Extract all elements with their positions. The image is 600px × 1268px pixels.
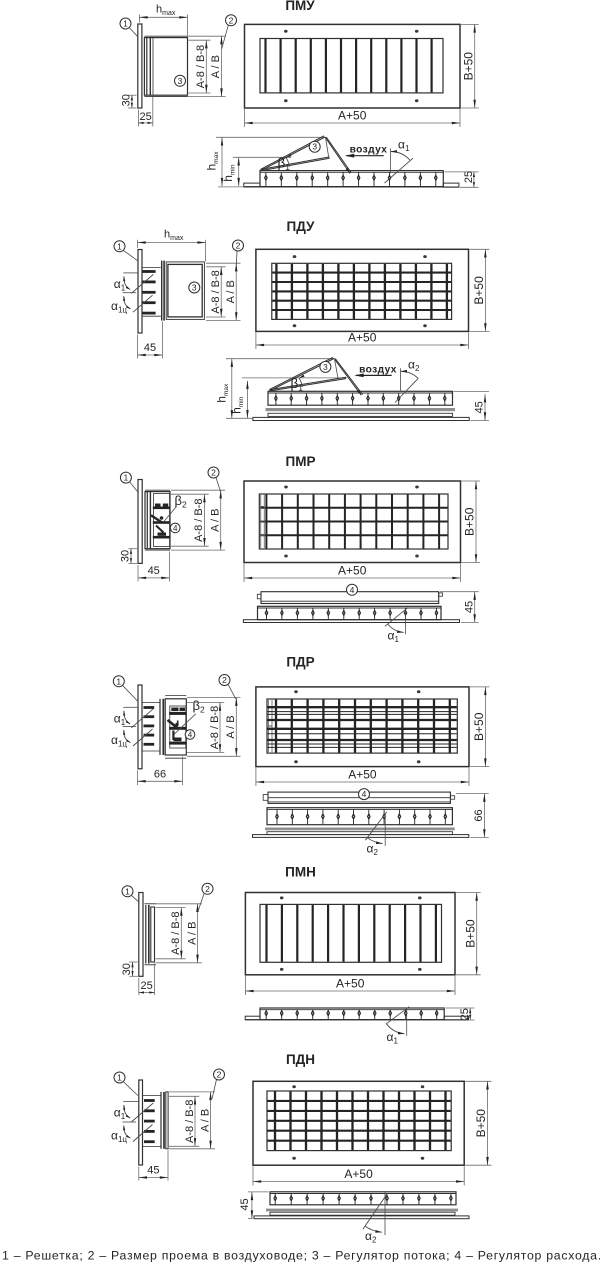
svg-text:3: 3	[192, 283, 197, 293]
svg-text:25: 25	[459, 1008, 471, 1020]
svg-text:hmax: hmax	[164, 229, 184, 243]
svg-text:ПДН: ПДН	[286, 1052, 315, 1067]
svg-text:β2: β2	[193, 698, 205, 715]
svg-text:45: 45	[474, 401, 486, 413]
svg-text:α1ц: α1ц	[111, 733, 127, 749]
svg-text:A-8 / B-8: A-8 / B-8	[170, 911, 182, 954]
svg-text:1: 1	[117, 1073, 122, 1083]
svg-text:3: 3	[323, 362, 328, 372]
svg-text:4: 4	[173, 524, 178, 533]
svg-text:A-8 / B-8: A-8 / B-8	[193, 498, 205, 541]
svg-text:30: 30	[120, 94, 132, 106]
svg-text:1: 1	[117, 241, 122, 251]
svg-text:1 – Решетка; 2 – Размер проема: 1 – Решетка; 2 – Размер проема в воздухо…	[2, 1249, 600, 1263]
svg-text:β1: β1	[278, 156, 291, 173]
svg-text:α1: α1	[398, 138, 410, 154]
svg-text:A-8 / B-8: A-8 / B-8	[195, 45, 207, 88]
svg-text:A-8 / B-8: A-8 / B-8	[210, 270, 222, 313]
svg-text:2: 2	[217, 1070, 222, 1080]
svg-text:A+50: A+50	[336, 977, 365, 991]
svg-text:4: 4	[188, 731, 193, 740]
svg-text:B+50: B+50	[472, 712, 486, 741]
svg-text:A / B: A / B	[186, 922, 198, 945]
svg-text:B+50: B+50	[463, 919, 477, 948]
svg-text:45: 45	[147, 1165, 159, 1177]
svg-text:A+50: A+50	[344, 1167, 373, 1181]
svg-text:A / B: A / B	[225, 280, 237, 303]
svg-text:ПМР: ПМР	[286, 454, 316, 469]
svg-text:A / B: A / B	[210, 55, 222, 78]
svg-text:A-8 / B-8: A-8 / B-8	[184, 1100, 196, 1143]
svg-text:4: 4	[350, 585, 355, 595]
svg-text:A / B: A / B	[210, 509, 222, 532]
svg-text:2: 2	[236, 241, 241, 251]
svg-text:α1ц: α1ц	[111, 1129, 127, 1145]
svg-text:A+50: A+50	[348, 768, 377, 782]
svg-text:66: 66	[154, 768, 166, 780]
svg-text:ПМН: ПМН	[285, 865, 316, 880]
svg-text:1: 1	[116, 676, 121, 686]
svg-text:66: 66	[473, 809, 485, 821]
svg-text:B+50: B+50	[463, 507, 477, 536]
svg-text:A-8 / B-8: A-8 / B-8	[209, 706, 221, 749]
svg-text:2: 2	[205, 884, 210, 894]
svg-text:45: 45	[148, 565, 160, 577]
svg-text:β1: β1	[291, 376, 304, 393]
svg-text:A / B: A / B	[225, 715, 237, 738]
svg-text:45: 45	[239, 1198, 251, 1210]
svg-text:hmax: hmax	[156, 4, 176, 18]
svg-text:hmax: hmax	[215, 383, 231, 403]
svg-text:3: 3	[312, 142, 317, 152]
svg-text:2: 2	[229, 15, 234, 25]
svg-text:A+50: A+50	[338, 564, 367, 578]
svg-text:α2: α2	[408, 357, 420, 373]
svg-text:α1ц: α1ц	[111, 299, 127, 315]
svg-text:1: 1	[123, 19, 128, 29]
svg-text:1: 1	[125, 886, 130, 896]
svg-text:воздух: воздух	[350, 145, 388, 156]
svg-text:B+50: B+50	[474, 1109, 488, 1138]
svg-text:2: 2	[211, 468, 216, 478]
svg-text:ПМУ: ПМУ	[285, 0, 315, 13]
svg-text:A / B: A / B	[199, 1109, 211, 1132]
svg-text:воздух: воздух	[359, 365, 397, 376]
svg-text:hmax: hmax	[205, 151, 221, 171]
svg-text:4: 4	[362, 789, 367, 799]
svg-text:ПДУ: ПДУ	[287, 219, 315, 234]
svg-text:ПДР: ПДР	[286, 654, 314, 669]
svg-text:45: 45	[463, 601, 475, 613]
svg-text:hmin: hmin	[221, 164, 237, 182]
svg-text:1: 1	[124, 473, 129, 483]
svg-text:B+50: B+50	[461, 52, 475, 81]
svg-text:3: 3	[178, 76, 183, 86]
svg-text:30: 30	[121, 963, 133, 975]
svg-text:25: 25	[463, 171, 475, 183]
svg-text:25: 25	[139, 111, 151, 123]
svg-text:A+50: A+50	[348, 331, 377, 345]
svg-text:25: 25	[140, 980, 152, 992]
svg-text:45: 45	[144, 342, 156, 354]
svg-text:B+50: B+50	[472, 276, 486, 305]
svg-text:30: 30	[120, 550, 132, 562]
svg-text:A+50: A+50	[338, 109, 367, 123]
svg-text:2: 2	[222, 675, 227, 685]
